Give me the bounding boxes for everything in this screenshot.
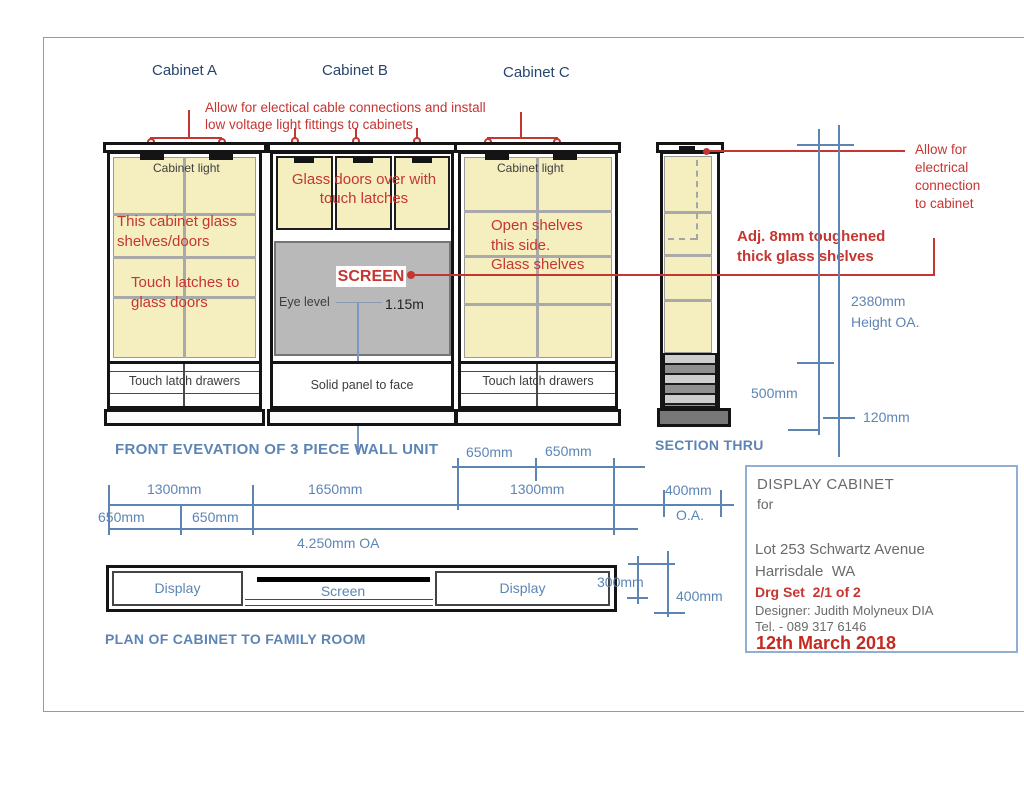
leader-line <box>188 110 190 138</box>
cabinet-c-drawers-label: Touch latch drawers <box>461 374 615 388</box>
leader-line <box>709 150 905 152</box>
light-fitting-icon <box>140 153 164 160</box>
light-fitting-icon <box>485 153 509 160</box>
screen-label: SCREEN <box>338 268 405 285</box>
dim-tick <box>720 490 722 517</box>
dim-tick <box>457 458 459 510</box>
dim-total-oa: 4.250mm OA <box>297 535 379 551</box>
leader-line <box>520 112 522 138</box>
cabinet-b-title: Cabinet B <box>322 62 388 79</box>
cabinet-b-doors-note: Glass doors over with touch latches <box>280 170 448 208</box>
cabinet-a-drawers-label: Touch latch drawers <box>110 374 259 388</box>
dim-tick <box>628 563 675 565</box>
dim-tick <box>797 144 854 146</box>
drawing-sheet: Cabinet A Cabinet B Cabinet C Allow for … <box>0 0 1024 786</box>
cabinet-a-title: Cabinet A <box>152 62 217 79</box>
light-fitting-icon <box>353 157 373 163</box>
light-fitting-icon <box>209 153 233 160</box>
dim-line <box>818 129 820 435</box>
leader-line <box>933 238 935 276</box>
cabinet-a-light-label: Cabinet light <box>153 161 220 175</box>
light-fitting-icon <box>294 157 314 163</box>
eye-level-line <box>336 302 382 303</box>
shelf-line <box>113 256 256 259</box>
cable-connection-note: Allow for electical cable connections an… <box>205 100 486 133</box>
cabinet-c-title: Cabinet C <box>503 64 570 81</box>
title-block-address1: Lot 253 Schwartz Avenue <box>755 541 925 558</box>
glass-shelves-note: Adj. 8mm toughened thick glass shelves <box>737 227 885 267</box>
plan-line <box>245 599 433 600</box>
dim-line <box>838 125 840 457</box>
dim-1650: 1650mm <box>308 481 362 497</box>
front-elevation-caption: FRONT EVEVATION OF 3 PIECE WALL UNIT <box>115 441 438 458</box>
dim-tick <box>797 362 834 364</box>
dim-line <box>108 504 645 506</box>
title-block-drg-set: Drg Set 2/1 of 2 <box>755 584 861 600</box>
section-dashed-line <box>696 160 698 240</box>
shelf-line <box>464 303 612 306</box>
dim-height-oa: Height OA. <box>851 314 919 330</box>
dim-tick <box>613 458 615 535</box>
dim-tick <box>788 429 820 431</box>
eye-level-label: Eye level <box>279 295 330 309</box>
cabinet-c-light-label: Cabinet light <box>497 161 564 175</box>
cabinet-c-plinth <box>455 409 621 426</box>
dim-650-bot-right: 650mm <box>192 509 239 525</box>
title-block-designer: Designer: Judith Molyneux DIA <box>755 603 933 618</box>
cabinet-a-latch-note: Touch latches to glass doors <box>131 273 239 313</box>
leader-line <box>150 137 222 139</box>
section-plinth <box>657 408 731 427</box>
light-fitting-icon <box>553 153 577 160</box>
dim-650-top-right: 650mm <box>545 443 592 459</box>
dim-400-plan: 400mm <box>676 588 723 604</box>
dim-tick <box>823 417 855 419</box>
dim-650-bot-left: 650mm <box>98 509 145 525</box>
dim-300: 300mm <box>597 574 644 590</box>
plan-line <box>245 605 433 606</box>
light-fitting-icon <box>679 146 695 152</box>
dim-2380: 2380mm <box>851 293 905 309</box>
cabinet-b-plinth <box>267 409 457 426</box>
dim-400: 400mm <box>665 482 712 498</box>
plan-screen-label: Screen <box>250 583 436 599</box>
section-drawer-stack <box>663 353 717 408</box>
cabinet-a-plinth <box>104 409 265 426</box>
leader-line <box>414 274 935 276</box>
title-block-address2: Harrisdale WA <box>755 563 855 580</box>
dim-1300-left: 1300mm <box>147 481 201 497</box>
shelf-line <box>664 211 712 214</box>
cabinet-c-shelves-note: Open shelves this side. Glass shelves <box>491 216 584 275</box>
plan-caption: PLAN OF CABINET TO FAMILY ROOM <box>105 631 366 647</box>
dim-tick <box>654 612 685 614</box>
solid-panel-label: Solid panel to face <box>273 378 451 392</box>
title-block-tel: Tel. - 089 317 6146 <box>755 619 866 634</box>
dim-1300-right: 1300mm <box>510 481 564 497</box>
title-block-date: 12th March 2018 <box>756 633 896 654</box>
dim-tick <box>180 504 182 535</box>
drawer-line <box>461 371 615 372</box>
title-block-title: DISPLAY CABINET <box>757 476 894 493</box>
shelf-line <box>664 299 712 302</box>
plan-screen-bar <box>257 577 430 582</box>
plan-display-right-label: Display <box>435 580 610 596</box>
light-fitting-icon <box>412 157 432 163</box>
dim-tick <box>667 551 669 617</box>
dim-line <box>452 466 645 468</box>
leader-line <box>487 137 558 139</box>
dim-500: 500mm <box>751 385 798 401</box>
dim-tick <box>627 597 648 599</box>
screen-label-box: SCREEN <box>336 266 406 287</box>
dim-oa-label: O.A. <box>676 507 704 523</box>
cabinet-a-glass-note: This cabinet glass shelves/doors <box>117 212 237 252</box>
dim-line <box>108 528 638 530</box>
dim-tick <box>252 485 254 535</box>
electrical-connection-note: Allow for electrical connection to cabin… <box>915 141 980 213</box>
dim-tick <box>535 458 537 481</box>
drawer-line <box>461 393 615 394</box>
dim-120: 120mm <box>863 409 910 425</box>
shelf-line <box>464 210 612 213</box>
section-dashed-line <box>668 238 696 240</box>
plan-display-left-label: Display <box>112 580 243 596</box>
shelf-line <box>664 254 712 257</box>
section-caption: SECTION THRU <box>655 437 764 453</box>
title-block-for: for <box>757 496 773 512</box>
dim-650-top-left: 650mm <box>466 444 513 460</box>
eye-height-value: 1.15m <box>385 296 424 312</box>
